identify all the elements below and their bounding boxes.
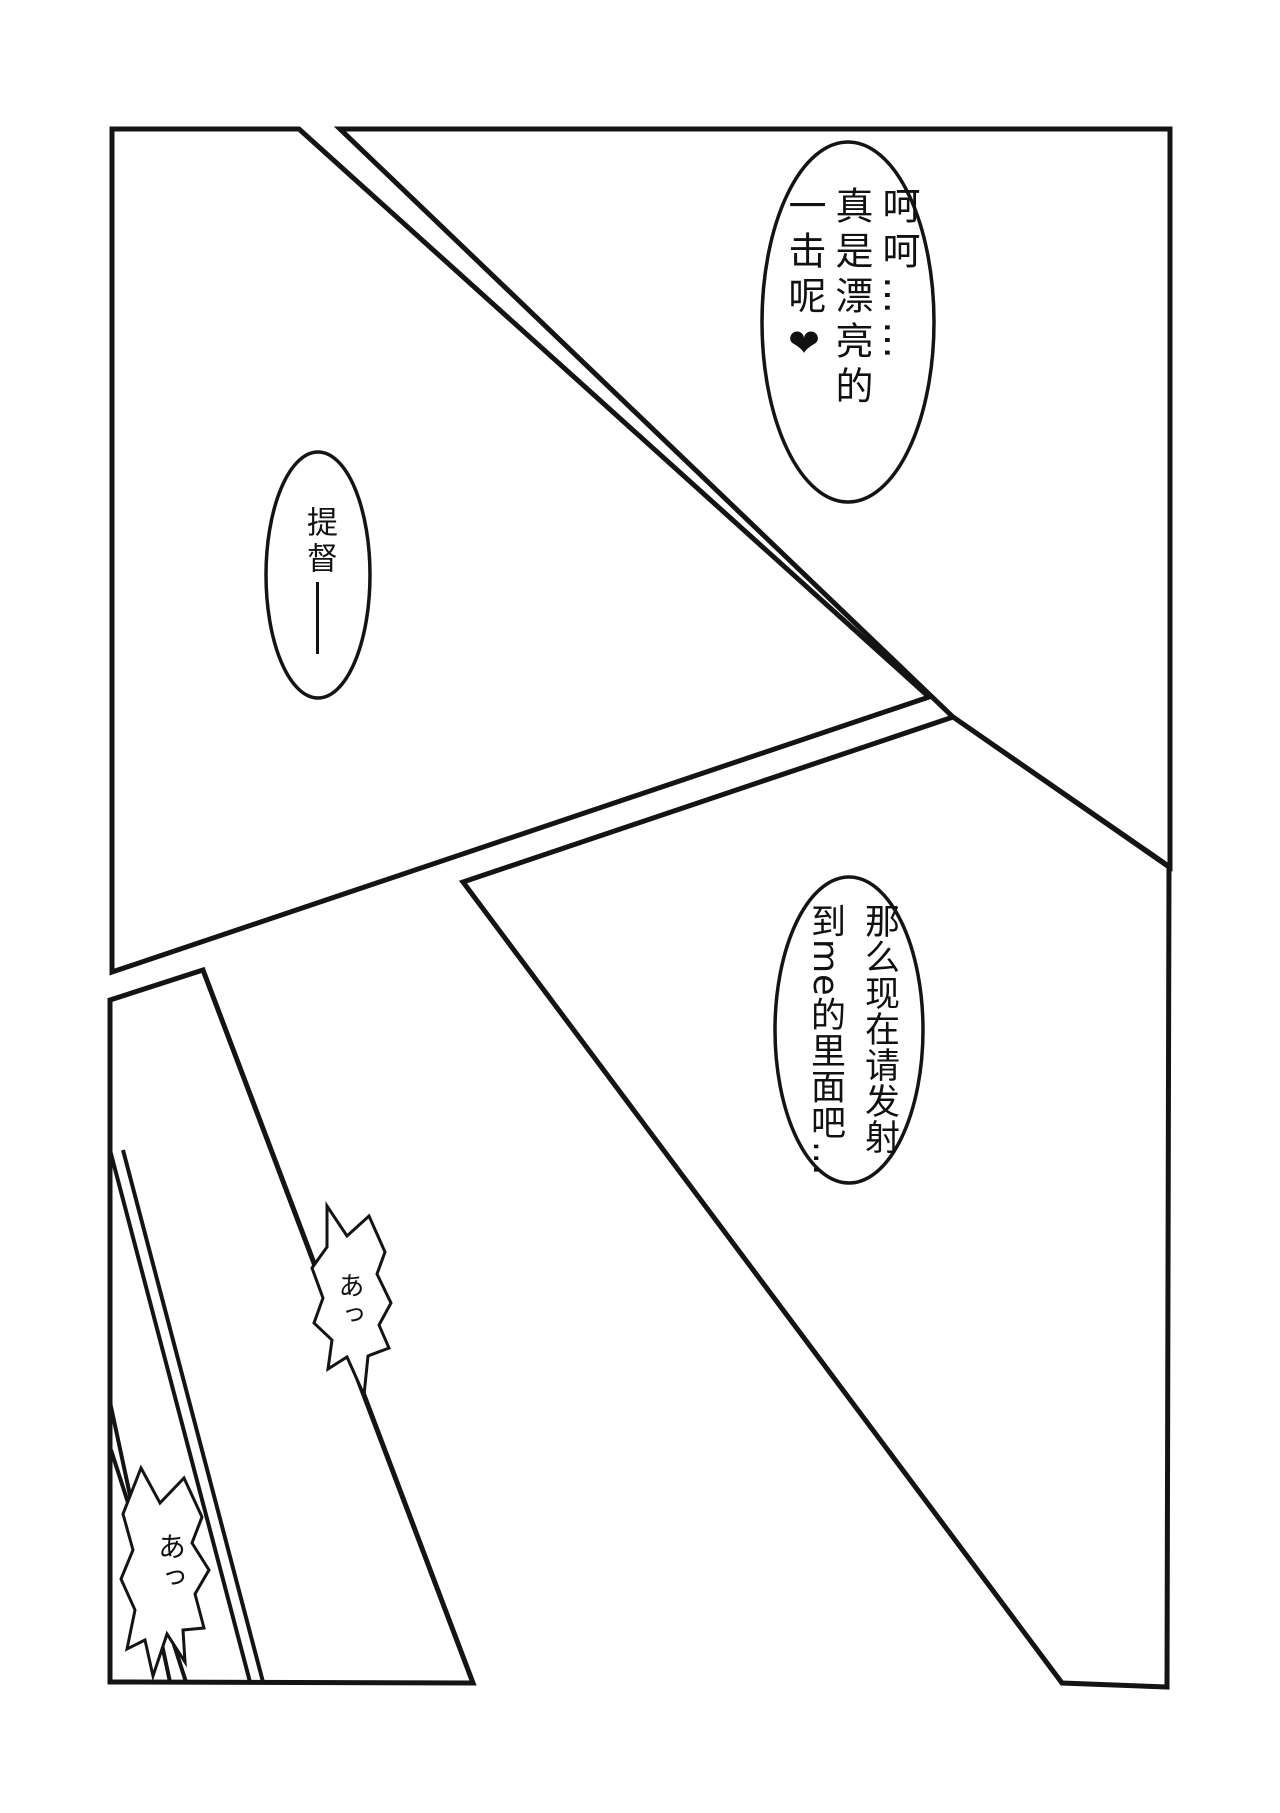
manga-page: 呵呵…… 真是漂亮的 一击呢❤︎ 提督 那么现在请发射 到me的里面吧… あっ … (0, 0, 1280, 1813)
gasp-text-1: あっ (334, 1272, 364, 1392)
speech-text-praise: 呵呵…… 真是漂亮的 一击呢❤︎ (779, 186, 921, 446)
speech-text-request: 那么现在请发射 到me的里面吧… (794, 903, 906, 1193)
page-artwork (0, 0, 1280, 1813)
gasp-text-2: あっ (152, 1532, 186, 1652)
panel-bottom-right (463, 717, 1169, 1687)
prolonged-sound-dash (316, 582, 319, 654)
speech-text-commander: 提督 (299, 506, 339, 666)
